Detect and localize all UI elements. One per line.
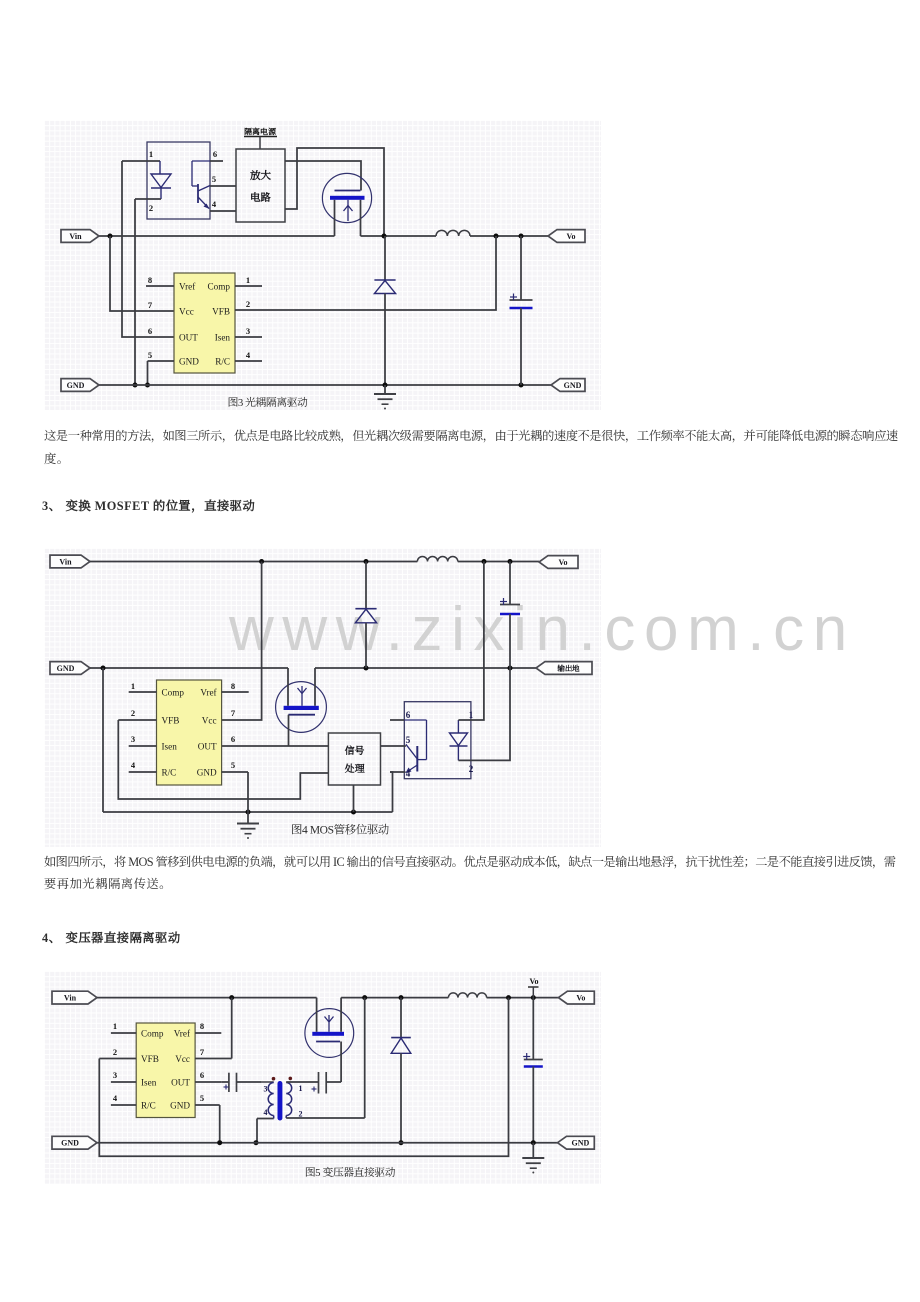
svg-text:Comp: Comp <box>141 1025 164 1039</box>
svg-text:1: 1 <box>469 708 474 721</box>
svg-text:1: 1 <box>131 680 135 692</box>
svg-text:VFB: VFB <box>162 712 180 726</box>
svg-text:8: 8 <box>200 1020 204 1032</box>
svg-text:OUT: OUT <box>198 738 217 752</box>
svg-text:GND: GND <box>170 1097 190 1111</box>
svg-text:6: 6 <box>231 733 235 745</box>
svg-text:OUT: OUT <box>171 1074 190 1088</box>
svg-text:3: 3 <box>264 1084 268 1095</box>
svg-text:Vref: Vref <box>200 684 217 698</box>
svg-text:7: 7 <box>200 1046 205 1058</box>
svg-text:8: 8 <box>231 680 235 692</box>
svg-text:GND: GND <box>572 1138 590 1149</box>
svg-text:4: 4 <box>131 759 136 771</box>
svg-text:5: 5 <box>200 1092 204 1104</box>
svg-text:图3 光耦隔离驱动: 图3 光耦隔离驱动 <box>227 395 308 410</box>
svg-text:4: 4 <box>264 1107 268 1118</box>
svg-text:6: 6 <box>148 325 152 337</box>
svg-text:Vo: Vo <box>558 557 567 568</box>
svg-text:1: 1 <box>299 1083 303 1094</box>
svg-text:VFB: VFB <box>212 303 230 317</box>
svg-text:Vref: Vref <box>179 278 196 292</box>
svg-text:8: 8 <box>148 274 152 286</box>
svg-text:GND: GND <box>197 764 217 778</box>
svg-text:GND: GND <box>57 663 75 674</box>
svg-text:4: 4 <box>406 767 411 780</box>
svg-text:放大: 放大 <box>250 168 271 183</box>
svg-text:6: 6 <box>200 1069 204 1081</box>
svg-text:R/C: R/C <box>162 764 177 778</box>
svg-text:Comp: Comp <box>162 684 185 698</box>
svg-text:3: 3 <box>131 733 135 745</box>
svg-text:Vo: Vo <box>576 993 585 1004</box>
svg-text:Isen: Isen <box>141 1074 157 1088</box>
svg-text:Vcc: Vcc <box>202 712 217 726</box>
svg-text:VFB: VFB <box>141 1051 159 1065</box>
svg-text:5: 5 <box>406 733 411 746</box>
svg-text:信号: 信号 <box>345 742 365 757</box>
svg-text:1: 1 <box>246 274 250 286</box>
svg-text:Vin: Vin <box>64 993 77 1004</box>
svg-text:Vo: Vo <box>529 976 538 987</box>
svg-text:5: 5 <box>212 173 216 185</box>
svg-text:Vcc: Vcc <box>175 1051 190 1065</box>
svg-text:3: 3 <box>246 325 250 337</box>
svg-text:Vcc: Vcc <box>179 303 194 317</box>
svg-text:R/C: R/C <box>215 353 230 367</box>
svg-text:5: 5 <box>148 349 152 361</box>
svg-text:4: 4 <box>113 1092 118 1104</box>
svg-text:Vin: Vin <box>59 557 72 568</box>
svg-text:2: 2 <box>246 298 250 310</box>
svg-text:图5 变压器直接驱动: 图5 变压器直接驱动 <box>305 1165 396 1180</box>
svg-text:处理: 处理 <box>344 760 366 775</box>
svg-text:4: 4 <box>246 349 251 361</box>
svg-text:3: 3 <box>113 1069 117 1081</box>
svg-text:1: 1 <box>113 1020 117 1032</box>
svg-text:图4 MOS管移位驱动: 图4 MOS管移位驱动 <box>291 822 389 838</box>
svg-text:Isen: Isen <box>162 738 178 752</box>
svg-text:GND: GND <box>61 1138 79 1149</box>
svg-text:6: 6 <box>213 148 217 160</box>
svg-text:Vo: Vo <box>566 231 575 242</box>
svg-text:Vin: Vin <box>69 231 82 242</box>
svg-text:Isen: Isen <box>215 329 231 343</box>
svg-text:2: 2 <box>131 707 135 719</box>
svg-text:GND: GND <box>564 380 582 391</box>
svg-text:Comp: Comp <box>208 278 231 292</box>
svg-text:7: 7 <box>148 299 153 311</box>
svg-text:OUT: OUT <box>179 329 198 343</box>
svg-text:Vref: Vref <box>174 1025 191 1039</box>
svg-text:7: 7 <box>231 707 236 719</box>
svg-text:R/C: R/C <box>141 1097 156 1111</box>
svg-text:2: 2 <box>149 202 153 214</box>
svg-text:1: 1 <box>149 148 153 160</box>
svg-text:电路: 电路 <box>250 190 271 205</box>
svg-text:4: 4 <box>212 198 217 210</box>
svg-text:5: 5 <box>231 759 235 771</box>
svg-text:输出地: 输出地 <box>556 663 580 674</box>
svg-text:6: 6 <box>406 708 411 721</box>
svg-text:2: 2 <box>469 762 474 775</box>
svg-text:GND: GND <box>179 353 199 367</box>
svg-text:2: 2 <box>113 1046 117 1058</box>
svg-text:GND: GND <box>67 380 85 391</box>
